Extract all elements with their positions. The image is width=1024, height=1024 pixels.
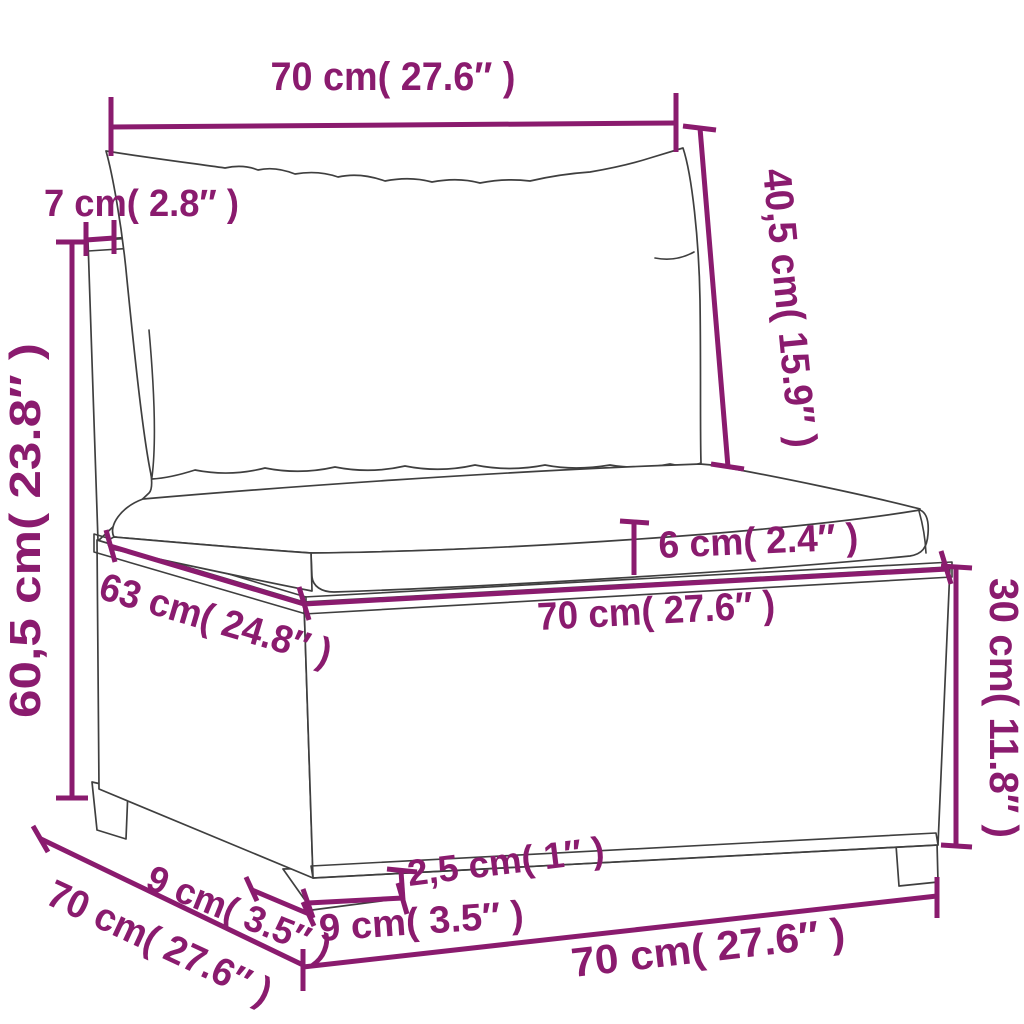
dim-total-height: 60,5 cm( 23.8″ ) [1,242,88,798]
leg-front-right [896,842,938,886]
dim-label-total-height: 60,5 cm( 23.8″ ) [1,343,50,718]
dim-label-seat-cushion-thickness: 6 cm( 2.4″ ) [658,516,860,567]
dim-back-cushion-height: 40,5 cm( 15.9″ ) [683,126,825,469]
dim-label-back-cushion-width: 70 cm( 27.6″ ) [271,55,516,99]
dimension-diagram: 70 cm( 27.6″ ) 40,5 cm( 15.9″ ) 7 cm( 2.… [0,0,1024,1024]
dim-label-back-cushion-height: 40,5 cm( 15.9″ ) [754,167,825,450]
dim-back-cushion-width: 70 cm( 27.6″ ) [111,55,676,156]
sofa-dimension-drawing: 70 cm( 27.6″ ) 40,5 cm( 15.9″ ) 7 cm( 2.… [0,0,1024,1024]
dim-label-back-panel-thickness: 7 cm( 2.8″ ) [44,183,239,225]
dim-label-base-height: 30 cm( 11.8″ ) [981,578,1024,838]
dim-base-height: 30 cm( 11.8″ ) [941,566,1024,847]
